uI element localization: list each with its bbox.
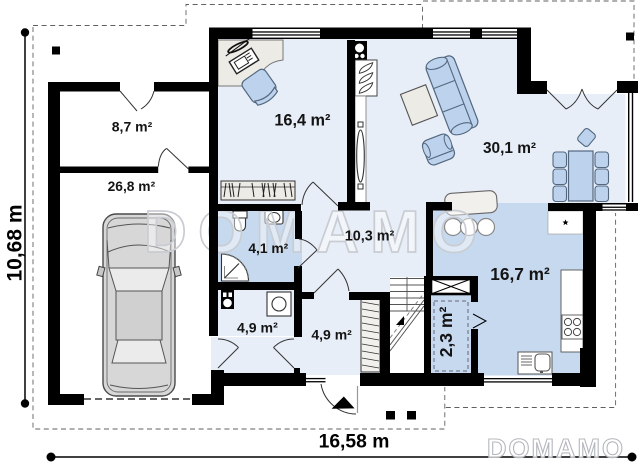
svg-text:DOMAMO: DOMAMO [487,434,625,464]
svg-text:4,1 m²: 4,1 m² [248,241,288,256]
svg-text:2,3 m²: 2,3 m² [436,307,456,358]
svg-text:16,7 m²: 16,7 m² [490,264,550,284]
svg-text:8,7 m²: 8,7 m² [112,118,153,134]
svg-text:16,4 m²: 16,4 m² [274,111,331,129]
svg-text:10,68 m: 10,68 m [4,204,27,281]
svg-text:26,8 m²: 26,8 m² [108,179,156,194]
svg-text:10,3 m²: 10,3 m² [345,229,395,245]
svg-text:30,1 m²: 30,1 m² [483,140,536,157]
svg-text:4,9 m²: 4,9 m² [311,327,352,343]
svg-text:16,58 m: 16,58 m [319,432,390,453]
svg-text:4,9 m²: 4,9 m² [237,320,278,336]
